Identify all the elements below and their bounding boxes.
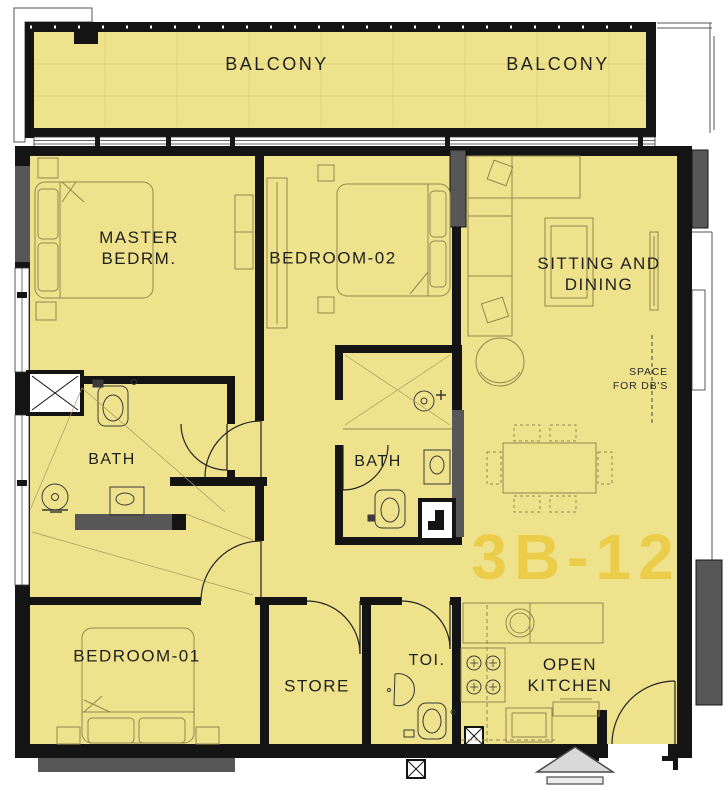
shaft-duct-box — [420, 500, 454, 540]
unit-floor — [28, 154, 680, 748]
floor-plan: BALCONY BALCONY MASTER BEDRM. BEDROOM-02… — [0, 0, 726, 789]
floor-plan-graphics — [0, 0, 726, 789]
balcony — [25, 22, 656, 138]
right-wall-features — [692, 150, 722, 705]
db-space-note: SPACE FOR DB'S — [613, 366, 668, 393]
